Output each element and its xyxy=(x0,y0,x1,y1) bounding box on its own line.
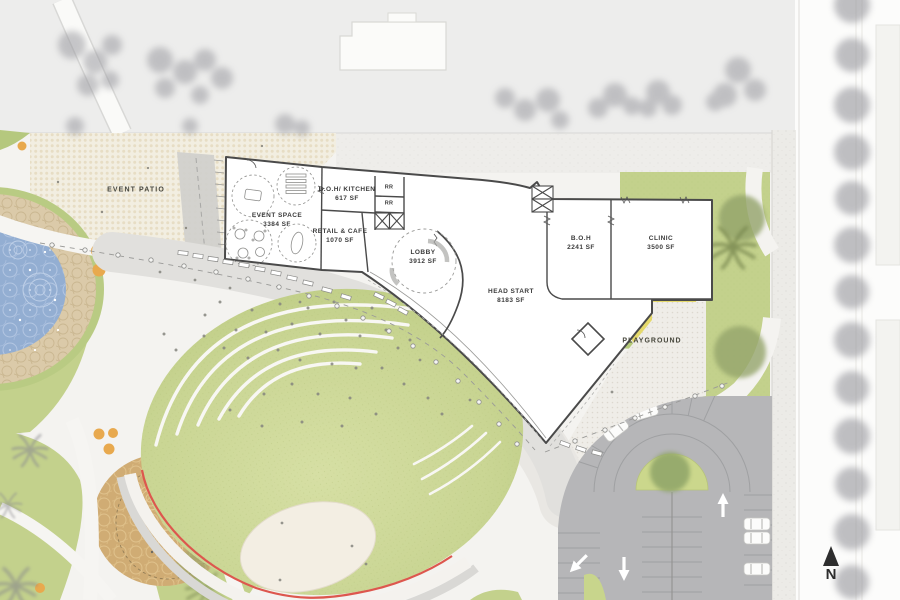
room-label-rr-1: RR xyxy=(385,184,394,191)
room-name: CLINIC xyxy=(647,235,675,244)
room-label-retail-cafe: RETAIL & CAFE 1070 SF xyxy=(313,228,368,246)
site-plan: EVENT PATIO EVENT SPACE 3384 SF B.O.H/ K… xyxy=(0,0,900,600)
room-area: 3500 SF xyxy=(647,244,675,253)
label-event-patio: EVENT PATIO xyxy=(107,185,165,194)
room-label-lobby: LOBBY 3912 SF xyxy=(409,249,437,267)
room-name: LOBBY xyxy=(409,249,437,258)
room-label-head-start: HEAD START 8183 SF xyxy=(488,288,534,306)
room-area: 3912 SF xyxy=(409,258,437,267)
room-area: 8183 SF xyxy=(488,297,534,306)
room-name: RETAIL & CAFE xyxy=(313,228,368,237)
north-arrow-letter: N xyxy=(826,565,837,585)
room-label-boh: B.O.H 2241 SF xyxy=(567,235,595,253)
room-area: 2241 SF xyxy=(567,244,595,253)
room-area: 617 SF xyxy=(319,195,376,204)
room-label-event-space: EVENT SPACE 3384 SF xyxy=(252,212,302,230)
tree-canopy xyxy=(714,326,766,378)
room-name: HEAD START xyxy=(488,288,534,297)
room-name: B.O.H xyxy=(567,235,595,244)
room-area: 1070 SF xyxy=(313,237,368,246)
room-area: 3384 SF xyxy=(252,221,302,230)
room-label-rr-2: RR xyxy=(385,200,394,207)
east-sidewalk xyxy=(772,130,796,600)
label-playground: PLAYGROUND xyxy=(622,336,681,345)
room-label-clinic: CLINIC 3500 SF xyxy=(647,235,675,253)
room-name: B.O.H/ KITCHEN xyxy=(319,186,376,195)
room-name: EVENT SPACE xyxy=(252,212,302,221)
room-label-boh-kitchen: B.O.H/ KITCHEN 617 SF xyxy=(319,186,376,204)
island-tree xyxy=(650,452,690,492)
adjacent-building-footprint xyxy=(340,13,446,70)
site-plan-drawing xyxy=(0,0,900,600)
